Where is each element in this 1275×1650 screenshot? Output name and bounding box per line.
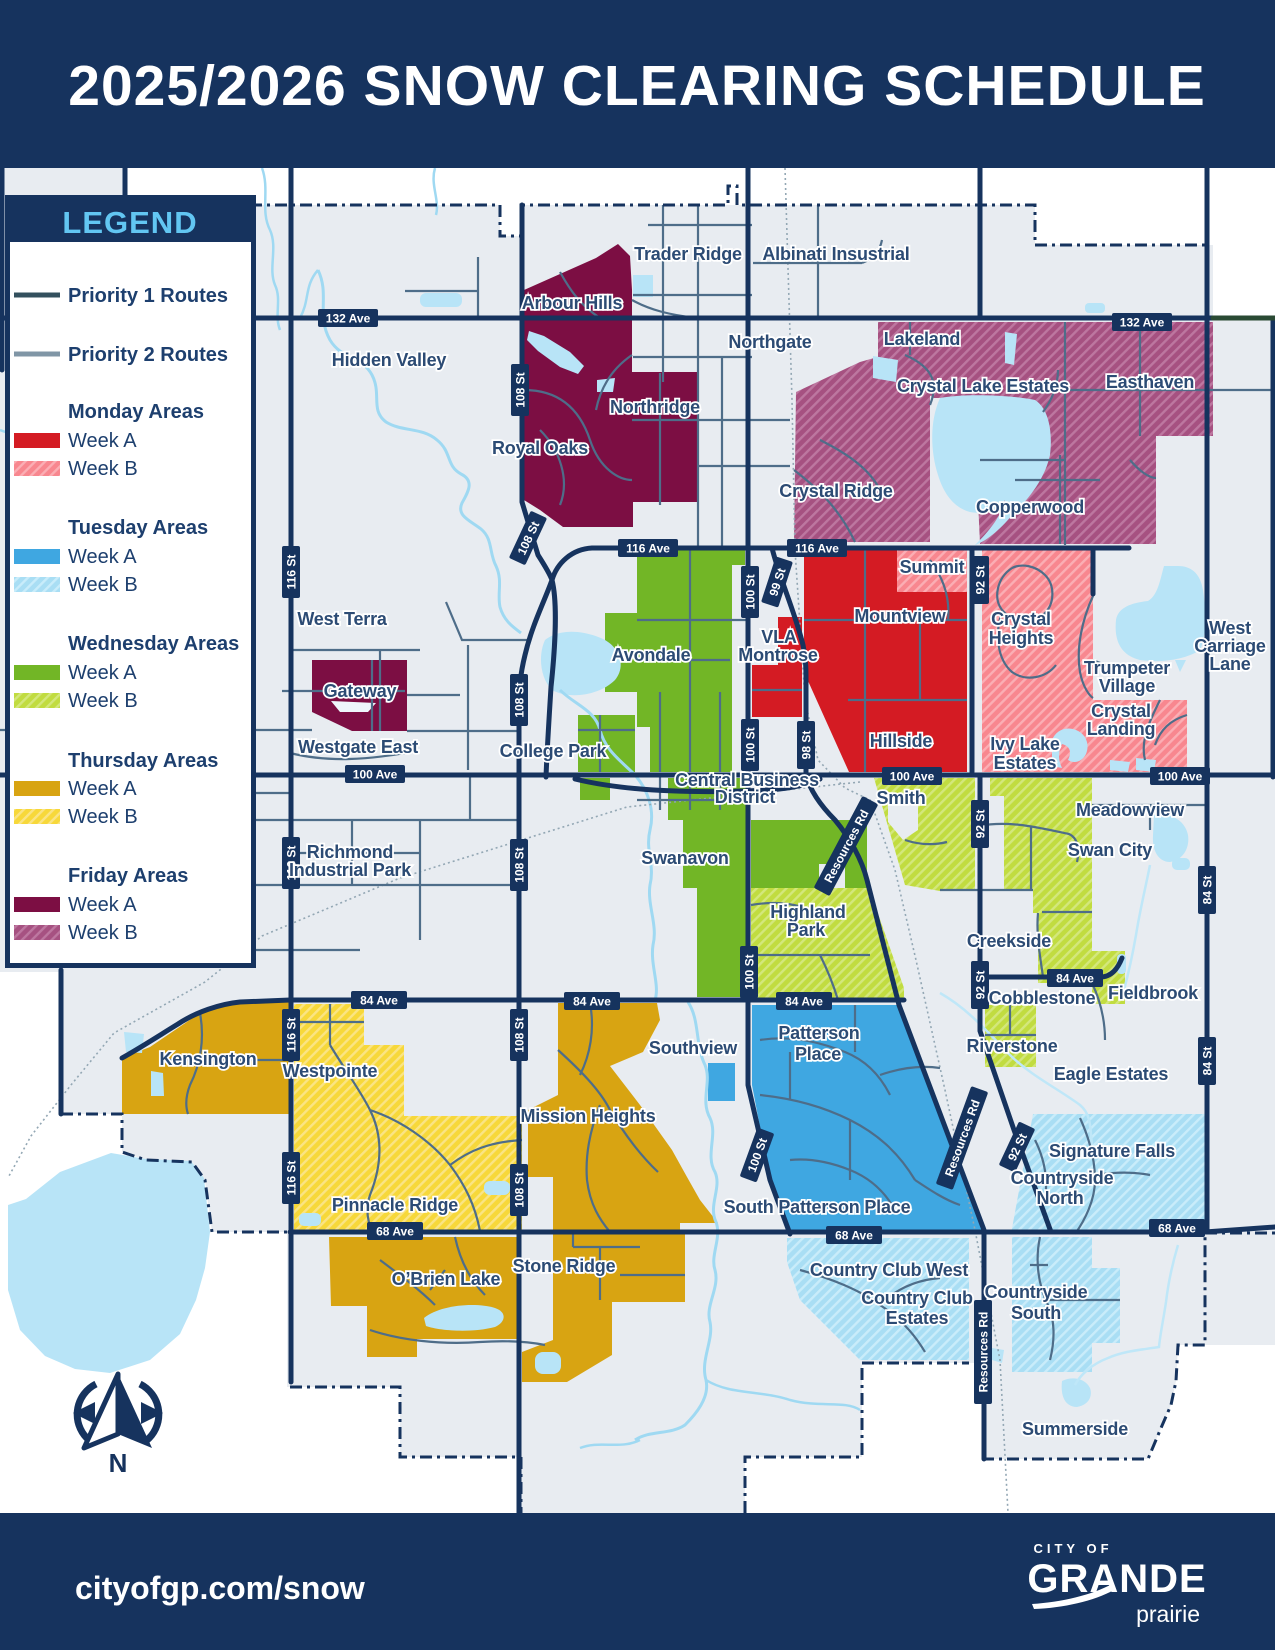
svg-text:Landing: Landing — [1087, 719, 1156, 739]
svg-text:108 St: 108 St — [513, 847, 527, 882]
svg-text:84 St: 84 St — [1201, 1047, 1215, 1076]
svg-text:84 Ave: 84 Ave — [1056, 972, 1094, 986]
svg-text:100 St: 100 St — [743, 954, 757, 989]
svg-text:Kensington: Kensington — [160, 1049, 257, 1069]
svg-text:Priority 2 Routes: Priority 2 Routes — [68, 344, 228, 366]
svg-text:Countryside: Countryside — [985, 1282, 1088, 1302]
svg-text:Riverstone: Riverstone — [966, 1036, 1057, 1056]
svg-text:Mountview: Mountview — [854, 606, 946, 626]
svg-text:Week A: Week A — [68, 778, 137, 800]
svg-text:92 St: 92 St — [974, 810, 988, 839]
svg-text:Westpointe: Westpointe — [283, 1061, 378, 1081]
svg-text:Swanavon: Swanavon — [641, 848, 728, 868]
svg-text:Southview: Southview — [649, 1038, 738, 1058]
svg-text:100 Ave: 100 Ave — [890, 770, 935, 784]
svg-text:Week A: Week A — [68, 894, 137, 916]
svg-text:100 St: 100 St — [744, 727, 758, 762]
svg-text:Week B: Week B — [68, 690, 138, 712]
svg-text:Crystal: Crystal — [991, 609, 1051, 629]
svg-text:LEGEND: LEGEND — [62, 205, 197, 240]
svg-text:Copperwood: Copperwood — [976, 497, 1084, 517]
svg-text:Royal Oaks: Royal Oaks — [492, 438, 588, 458]
svg-text:Cobblestone: Cobblestone — [989, 988, 1096, 1008]
svg-text:84 Ave: 84 Ave — [573, 995, 611, 1009]
svg-text:N: N — [109, 1448, 128, 1478]
svg-text:GRANDE: GRANDE — [1027, 1557, 1206, 1601]
svg-text:Highland: Highland — [770, 902, 845, 922]
svg-text:O’Brien Lake: O’Brien Lake — [392, 1269, 501, 1289]
svg-text:Montrose: Montrose — [738, 645, 818, 665]
svg-text:Estates: Estates — [994, 753, 1057, 773]
svg-text:South: South — [1011, 1303, 1061, 1323]
svg-text:92 St: 92 St — [974, 566, 988, 595]
svg-text:Summerside: Summerside — [1022, 1419, 1128, 1439]
svg-text:Week B: Week B — [68, 922, 138, 944]
svg-text:Smith: Smith — [876, 788, 925, 808]
svg-text:Stone Ridge: Stone Ridge — [513, 1256, 616, 1276]
svg-text:Northgate: Northgate — [728, 332, 811, 352]
svg-text:116 Ave: 116 Ave — [795, 542, 839, 556]
svg-text:cityofgp.com/snow: cityofgp.com/snow — [75, 1570, 365, 1606]
svg-text:South Patterson Place: South Patterson Place — [724, 1197, 911, 1217]
svg-text:116 St: 116 St — [285, 1018, 299, 1053]
svg-text:108 St: 108 St — [513, 1172, 527, 1207]
svg-text:prairie: prairie — [1136, 1601, 1200, 1627]
svg-text:Mission Heights: Mission Heights — [520, 1106, 655, 1126]
svg-text:Industrial Park: Industrial Park — [289, 860, 412, 880]
svg-text:Carriage: Carriage — [1194, 636, 1266, 656]
svg-text:132 Ave: 132 Ave — [326, 312, 371, 326]
svg-text:Tuesday Areas: Tuesday Areas — [68, 517, 208, 539]
svg-text:Place: Place — [795, 1044, 841, 1064]
svg-text:Ivy Lake: Ivy Lake — [990, 734, 1060, 754]
svg-text:Easthaven: Easthaven — [1106, 372, 1194, 392]
svg-text:Creekside: Creekside — [967, 931, 1051, 951]
svg-text:Thursday Areas: Thursday Areas — [68, 750, 218, 772]
svg-text:Eagle Estates: Eagle Estates — [1054, 1064, 1169, 1084]
svg-text:116 St: 116 St — [285, 1161, 299, 1196]
svg-text:Priority 1 Routes: Priority 1 Routes — [68, 285, 228, 307]
svg-text:Lane: Lane — [1209, 654, 1250, 674]
svg-text:Week B: Week B — [68, 806, 138, 828]
svg-text:Pinnacle Ridge: Pinnacle Ridge — [332, 1195, 458, 1215]
svg-text:84 Ave: 84 Ave — [360, 994, 398, 1008]
svg-text:Meadowview: Meadowview — [1076, 800, 1185, 820]
svg-text:Estates: Estates — [886, 1308, 949, 1328]
svg-text:84 Ave: 84 Ave — [785, 995, 823, 1009]
svg-text:Country Club: Country Club — [861, 1288, 973, 1308]
svg-text:Fieldbrook: Fieldbrook — [1108, 983, 1199, 1003]
svg-text:100 St: 100 St — [744, 574, 758, 609]
svg-text:CITY OF: CITY OF — [1033, 1541, 1112, 1556]
svg-text:Crystal Lake Estates: Crystal Lake Estates — [897, 376, 1069, 396]
svg-text:Avondale: Avondale — [612, 645, 691, 665]
svg-text:Country Club West: Country Club West — [810, 1260, 968, 1280]
svg-text:VLA: VLA — [761, 627, 797, 647]
svg-text:Monday Areas: Monday Areas — [68, 401, 204, 423]
svg-text:108 St: 108 St — [514, 372, 528, 407]
svg-text:West: West — [1209, 618, 1251, 638]
svg-text:132 Ave: 132 Ave — [1120, 316, 1165, 330]
svg-text:Wednesday Areas: Wednesday Areas — [68, 633, 239, 655]
svg-text:Trumpeter: Trumpeter — [1084, 658, 1170, 678]
svg-text:Gateway: Gateway — [324, 681, 397, 701]
svg-text:Northridge: Northridge — [610, 397, 700, 417]
svg-text:108 St: 108 St — [513, 1017, 527, 1052]
svg-text:College Park: College Park — [500, 741, 608, 761]
svg-text:Friday Areas: Friday Areas — [68, 865, 188, 887]
svg-text:Swan City: Swan City — [1068, 840, 1152, 860]
svg-text:2025/2026 SNOW CLEARING SCHEDU: 2025/2026 SNOW CLEARING SCHEDULE — [68, 54, 1205, 118]
svg-text:68 Ave: 68 Ave — [1158, 1222, 1196, 1236]
svg-text:North: North — [1037, 1188, 1084, 1208]
svg-text:Lakeland: Lakeland — [884, 329, 960, 349]
svg-text:68 Ave: 68 Ave — [835, 1229, 873, 1243]
svg-text:Park: Park — [787, 920, 826, 940]
svg-text:84 St: 84 St — [1201, 876, 1215, 905]
svg-text:Village: Village — [1099, 676, 1155, 696]
svg-text:100 Ave: 100 Ave — [1158, 770, 1203, 784]
svg-text:Week A: Week A — [68, 546, 137, 568]
svg-text:Hillside: Hillside — [870, 731, 933, 751]
svg-text:Resources Rd: Resources Rd — [977, 1312, 991, 1393]
svg-text:Richmond: Richmond — [307, 842, 393, 862]
svg-text:Westgate East: Westgate East — [298, 737, 418, 757]
svg-text:98 St: 98 St — [800, 731, 814, 760]
svg-text:Crystal: Crystal — [1091, 701, 1151, 721]
svg-text:Albinati Insustrial: Albinati Insustrial — [762, 244, 909, 264]
svg-text:Patterson: Patterson — [778, 1023, 859, 1043]
svg-text:108 St: 108 St — [513, 682, 527, 717]
svg-text:Signature Falls: Signature Falls — [1049, 1141, 1175, 1161]
svg-text:116 Ave: 116 Ave — [626, 542, 670, 556]
svg-text:116 St: 116 St — [285, 555, 299, 590]
svg-text:Arbour Hills: Arbour Hills — [522, 293, 623, 313]
svg-text:68 Ave: 68 Ave — [376, 1225, 414, 1239]
svg-text:Crystal Ridge: Crystal Ridge — [779, 481, 893, 501]
svg-text:District: District — [715, 787, 776, 807]
svg-text:Week B: Week B — [68, 574, 138, 596]
svg-text:Summit: Summit — [900, 557, 965, 577]
svg-text:92 St: 92 St — [974, 971, 988, 1000]
svg-text:West Terra: West Terra — [297, 609, 388, 629]
svg-text:Heights: Heights — [989, 628, 1054, 648]
svg-text:Week A: Week A — [68, 430, 137, 452]
svg-text:100 Ave: 100 Ave — [353, 768, 398, 782]
svg-text:Week A: Week A — [68, 662, 137, 684]
svg-text:Hidden Valley: Hidden Valley — [332, 350, 447, 370]
svg-text:Trader Ridge: Trader Ridge — [634, 244, 742, 264]
svg-text:Week B: Week B — [68, 458, 138, 480]
svg-text:Countryside: Countryside — [1011, 1168, 1114, 1188]
